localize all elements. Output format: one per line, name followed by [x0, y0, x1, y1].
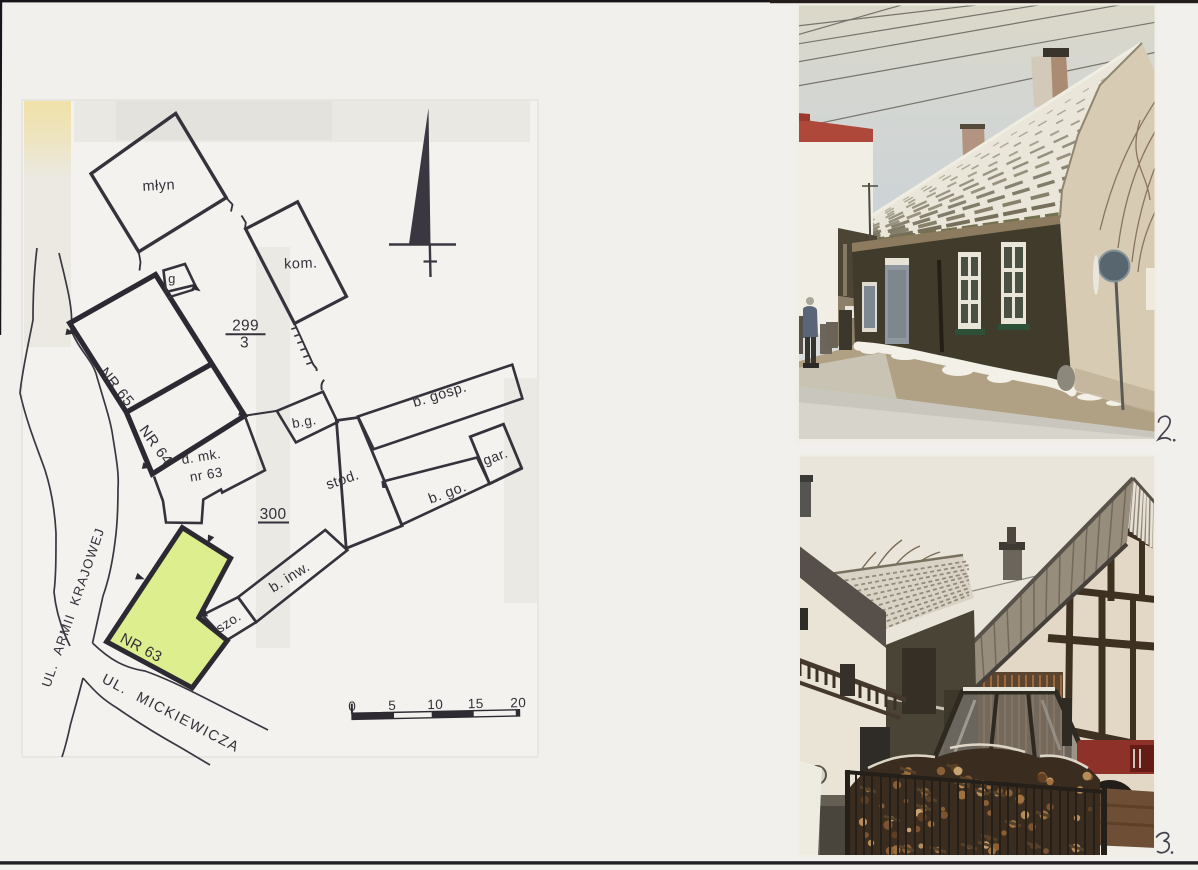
svg-text:młyn: młyn [142, 177, 175, 195]
svg-text:kom.: kom. [284, 255, 318, 272]
svg-text:20: 20 [510, 695, 526, 710]
svg-text:300: 300 [260, 506, 287, 523]
svg-text:g: g [168, 271, 176, 286]
svg-text:3: 3 [240, 335, 249, 352]
svg-text:10: 10 [427, 697, 443, 712]
svg-text:5: 5 [388, 698, 396, 713]
svg-text:299: 299 [232, 318, 259, 335]
svg-text:15: 15 [468, 696, 484, 711]
